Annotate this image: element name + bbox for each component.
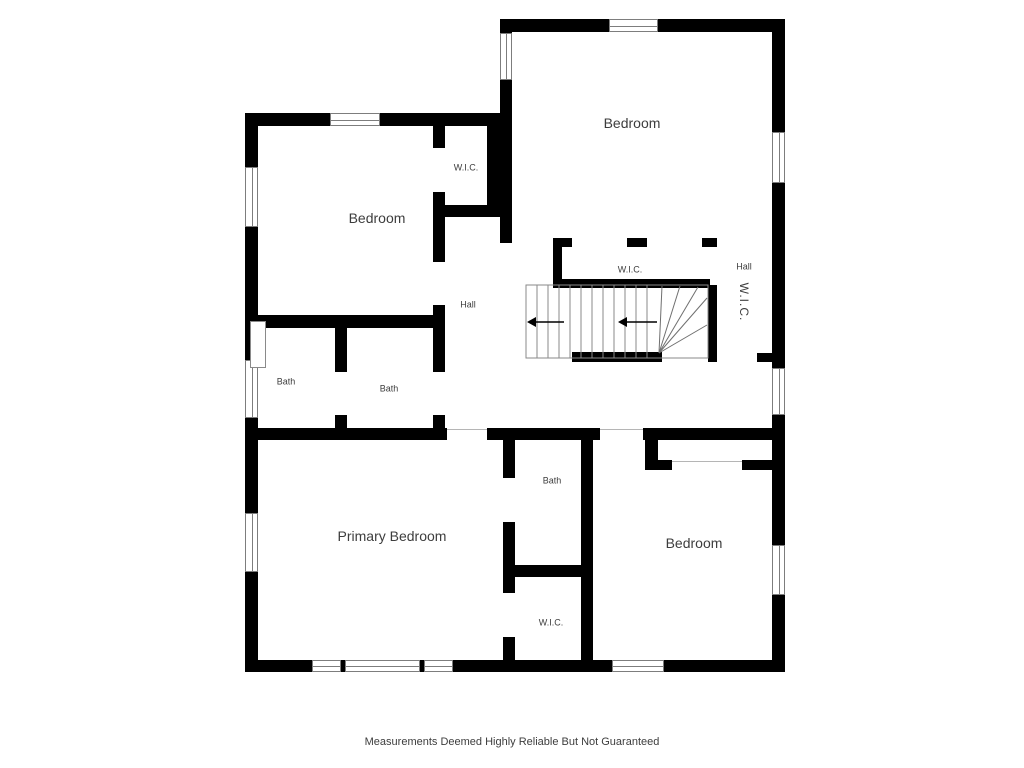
room-label-wic-bottom: W.I.C. xyxy=(539,619,564,628)
disclaimer-text: Measurements Deemed Highly Reliable But … xyxy=(0,736,1024,748)
room-label-bedroom-top-right: Bedroom xyxy=(604,116,661,130)
stairs-outline xyxy=(526,285,708,358)
room-label-hall-right: Hall xyxy=(736,263,752,272)
floor-plan-page: Bedroom W.I.C. Bedroom W.I.C. Hall W.I.C… xyxy=(0,0,1024,768)
room-label-wic-right: W.I.C. xyxy=(738,283,750,322)
room-label-bath-bottom: Bath xyxy=(543,477,562,486)
stairs-graphic xyxy=(0,0,1024,768)
room-label-wic-top-left: W.I.C. xyxy=(454,164,479,173)
stairs-layer xyxy=(0,0,1024,768)
room-label-primary-bedroom: Primary Bedroom xyxy=(338,529,447,543)
stairs-direction-arrow xyxy=(527,317,536,327)
stairs-direction-arrow xyxy=(618,317,627,327)
room-label-bath-left: Bath xyxy=(277,378,296,387)
room-label-bedroom-bottom-right: Bedroom xyxy=(666,536,723,550)
room-label-wic-middle: W.I.C. xyxy=(618,266,643,275)
room-label-hall-left: Hall xyxy=(460,301,476,310)
room-label-bath-middle: Bath xyxy=(380,385,399,394)
room-label-bedroom-top-left: Bedroom xyxy=(349,211,406,225)
